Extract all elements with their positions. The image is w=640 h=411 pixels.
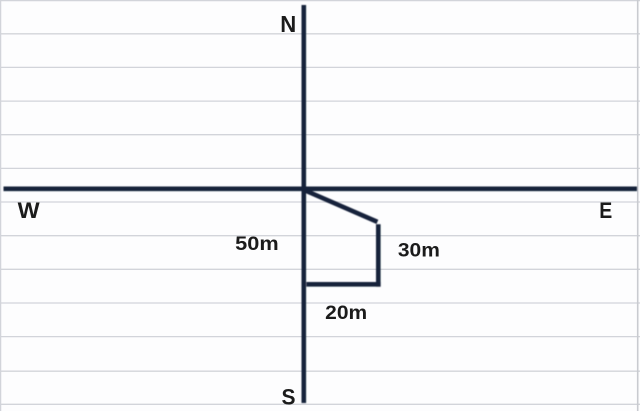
svg-text:20m: 20m <box>325 302 367 324</box>
svg-text:50m: 50m <box>235 233 279 255</box>
svg-text:E: E <box>599 198 612 223</box>
svg-text:S: S <box>282 385 296 410</box>
svg-text:W: W <box>18 198 41 223</box>
svg-text:30m: 30m <box>398 240 440 262</box>
svg-text:N: N <box>280 11 296 37</box>
